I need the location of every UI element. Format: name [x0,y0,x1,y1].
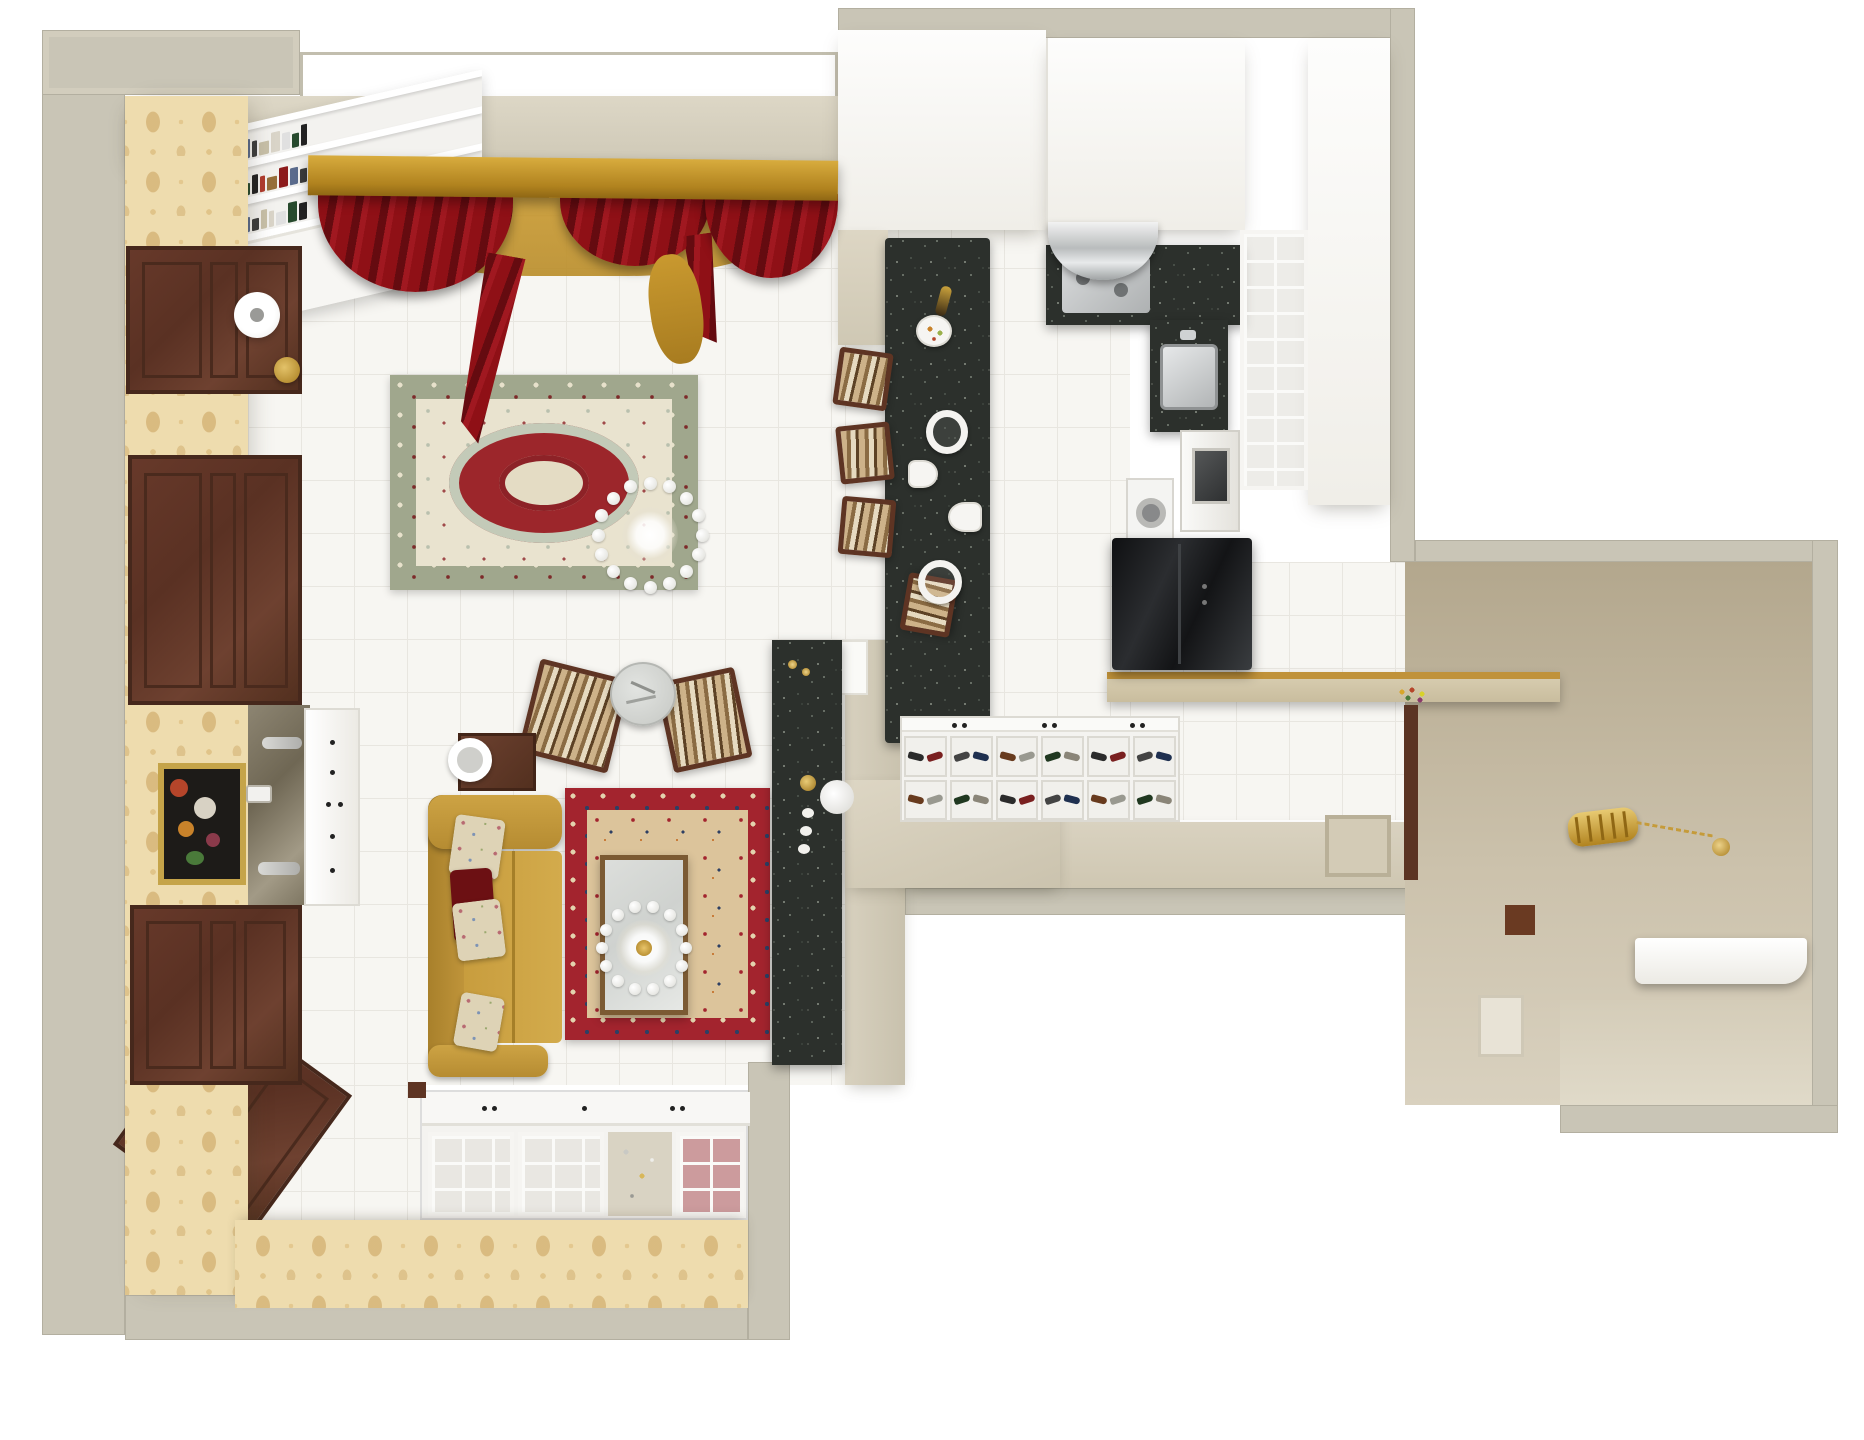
flower-decor [1396,684,1432,704]
door-panel-2 [128,455,302,705]
side-table-lamp [448,738,492,782]
bar-stool-3 [838,496,897,558]
framed-painting [158,763,246,885]
outer-wall-top-left-block [42,30,300,95]
built-in-oven [1180,430,1240,532]
sofa [428,795,562,1077]
shoe-cabinet [900,716,1180,822]
bar-plate-1 [908,460,938,488]
console-wood-trim [1404,705,1418,880]
curtain-swag-right [705,194,838,278]
entry-bench [1635,938,1807,984]
outer-wall-hall-top [1415,540,1838,562]
outer-wall-bay-right [748,1062,790,1340]
bar-pendant-light-2 [918,560,962,604]
granite-media-wall [772,640,842,1065]
floor-plan-render [0,0,1864,1440]
sofa-pillow-floral-2 [452,898,507,961]
partition-door-frame [840,640,868,695]
cabinet-glass-door-1 [428,1132,514,1216]
bar-stool-1 [832,347,894,412]
curtains [310,194,838,454]
entry-wall-frame [1478,995,1524,1057]
round-glass-table [610,662,676,726]
kitchen-sink [1160,344,1218,410]
bar-stool-2 [835,421,895,484]
floor-lamp-gold-base [274,357,300,383]
floor-lamp [234,292,280,338]
cabinet-glass-door-3 [676,1132,744,1216]
cabinet-glass-door-2 [518,1132,604,1216]
entry-floor-lower [1560,1000,1812,1105]
fruit-plate [916,315,952,347]
lantern-ceiling-ball [1712,838,1730,856]
outer-wall-entry-bottom [1560,1105,1838,1133]
kitchen-upper-cabinets-top [1046,38,1245,230]
sofa-pillow-floral-3 [453,992,506,1053]
bottom-bay-wallpaper-band [235,1220,748,1308]
refrigerator [1112,538,1252,670]
outer-wall-entry-right [1812,540,1838,1133]
white-sideboard [304,708,360,906]
bar-plate-2 [948,502,982,532]
outer-wall-kitchen-right [1390,8,1415,562]
outer-wall-left [42,30,125,1335]
entry-wood-step [1505,905,1535,935]
kitchen-glass-cabinet [1240,230,1308,490]
media-mirror-strip [248,705,310,905]
wall-sconce-top [262,737,302,749]
sink-counter [1150,320,1228,432]
hall-square-seat [1325,815,1391,877]
bar-pendant-light-1 [926,410,968,454]
curtain-pelmet [308,155,838,201]
wall-sconce-bottom [258,862,300,875]
chandelier-over-rug [590,475,710,595]
china-display-cabinets [420,1090,748,1220]
kitchen-upper-cabinets-left [838,30,1046,230]
wall-clock [246,785,272,803]
chandelier-over-coffee-table [592,896,696,1000]
kitchen-living-divider-wall [838,230,888,345]
cabinet-open-shelf [608,1132,672,1216]
kitchen-upper-cabinets-right-column [1308,38,1390,505]
door-panel-3 [130,905,302,1085]
hall-console [1107,672,1560,702]
